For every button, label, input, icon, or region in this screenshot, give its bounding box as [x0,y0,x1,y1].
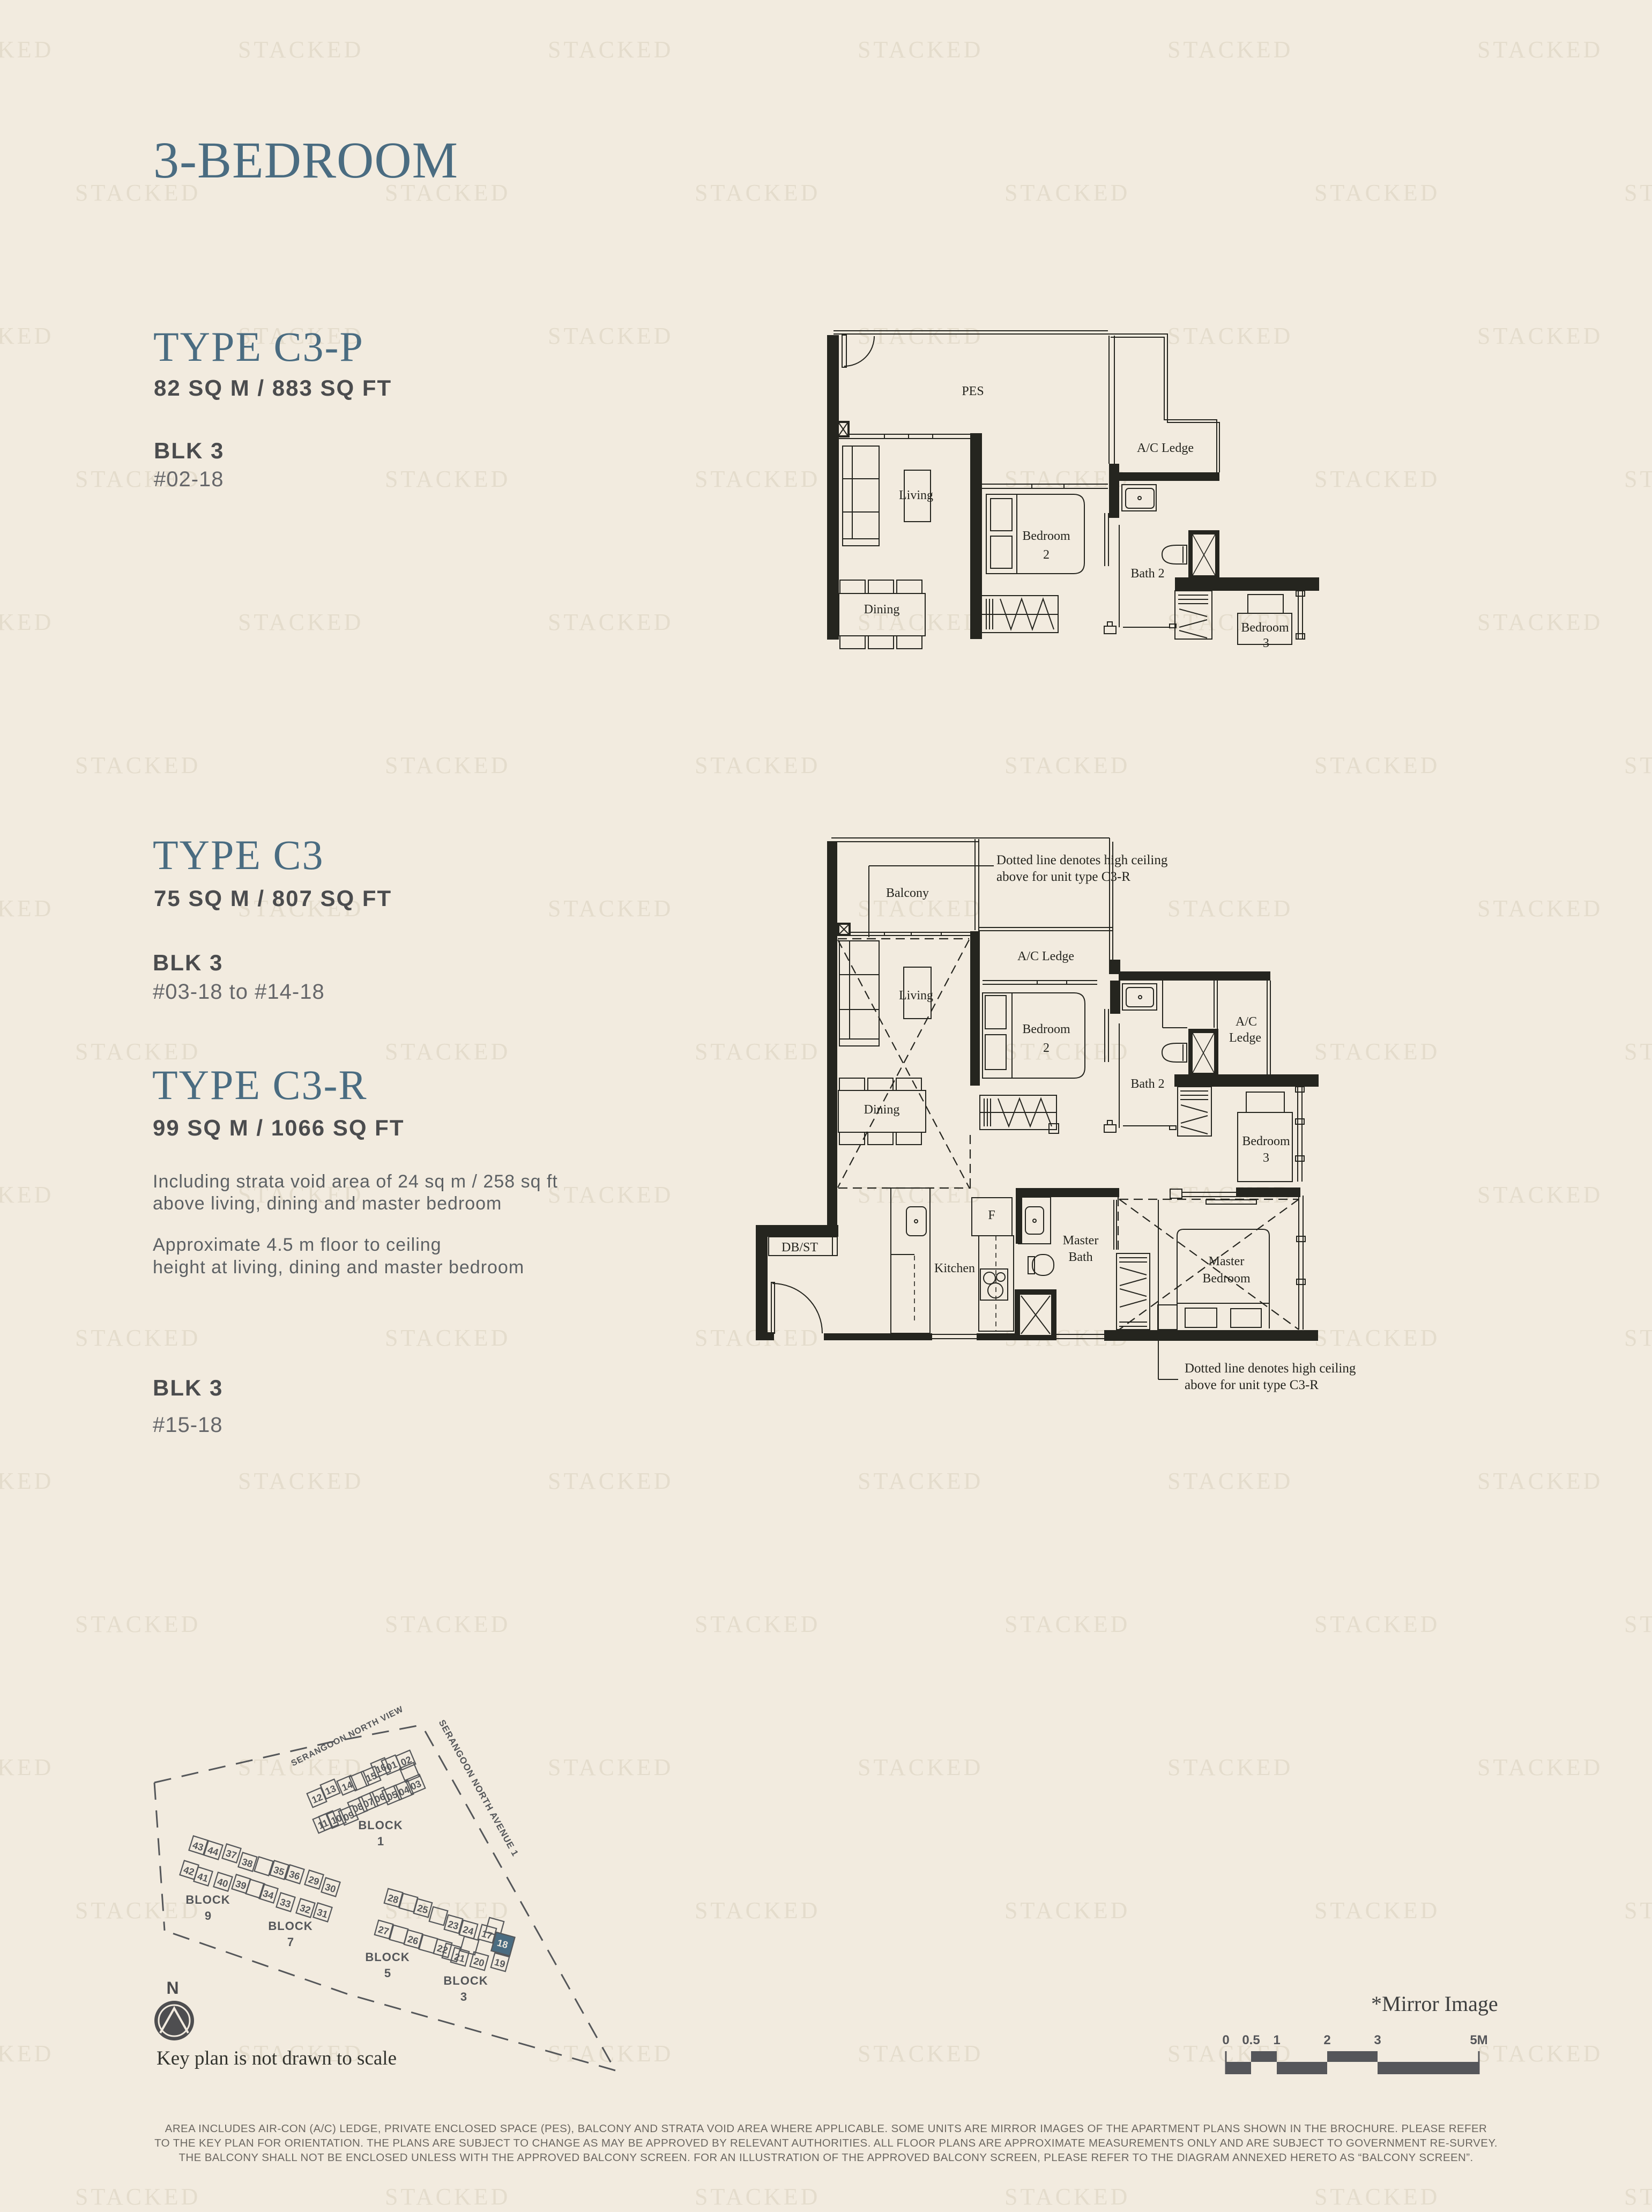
svg-text:Bath 2: Bath 2 [1130,567,1164,581]
svg-text:3: 3 [1263,1151,1269,1165]
svg-text:9: 9 [205,1909,211,1922]
svg-text:2: 2 [1043,1041,1050,1055]
svg-text:BLOCK: BLOCK [443,1974,488,1987]
svg-text:BLOCK: BLOCK [358,1818,403,1832]
svg-text:Ledge: Ledge [1229,1031,1261,1045]
svg-text:Dining: Dining [864,1103,900,1117]
svg-text:Dining: Dining [864,603,900,617]
svg-text:A/C Ledge: A/C Ledge [1017,949,1074,963]
svg-text:Kitchen: Kitchen [934,1261,975,1275]
svg-text:DB/ST: DB/ST [782,1241,818,1255]
svg-text:above for unit type C3-R: above for unit type C3-R [1185,1378,1319,1392]
svg-text:N: N [166,1978,178,1998]
svg-text:Bedroom: Bedroom [1022,1022,1070,1036]
svg-text:F: F [988,1208,995,1222]
svg-text:Bedroom: Bedroom [1022,529,1070,543]
svg-text:5: 5 [384,1966,391,1980]
svg-text:BLOCK: BLOCK [268,1919,312,1933]
svg-text:BLOCK: BLOCK [365,1950,410,1964]
svg-text:PES: PES [962,384,984,398]
svg-text:Bedroom: Bedroom [1241,621,1289,635]
svg-text:Bath: Bath [1068,1250,1092,1264]
svg-text:Living: Living [899,488,933,502]
svg-text:3: 3 [460,1990,467,2003]
svg-text:Dotted line denotes high ceili: Dotted line denotes high ceiling [996,853,1168,867]
svg-text:1: 1 [377,1835,384,1848]
svg-text:1: 1 [1273,2033,1280,2047]
svg-text:0: 0 [1222,2033,1229,2047]
svg-text:5M: 5M [1470,2033,1487,2047]
svg-text:Master: Master [1063,1234,1099,1248]
svg-text:above for unit type C3-R: above for unit type C3-R [996,870,1130,884]
svg-text:Balcony: Balcony [886,886,929,900]
svg-text:Dotted line denotes high ceili: Dotted line denotes high ceiling [1185,1361,1356,1376]
svg-text:Bedroom: Bedroom [1202,1272,1251,1286]
svg-text:Living: Living [899,989,933,1003]
svg-text:Bath 2: Bath 2 [1130,1077,1164,1091]
svg-text:3: 3 [1374,2033,1381,2047]
svg-text:3: 3 [1263,636,1269,650]
svg-text:A/C: A/C [1236,1015,1257,1029]
svg-text:Master: Master [1209,1255,1245,1268]
svg-text:A/C Ledge: A/C Ledge [1137,441,1194,455]
svg-text:2: 2 [1323,2033,1330,2047]
svg-text:2: 2 [1043,548,1050,562]
svg-text:Bedroom: Bedroom [1242,1134,1290,1148]
svg-text:0.5: 0.5 [1242,2033,1260,2047]
svg-text:7: 7 [287,1935,294,1949]
svg-text:BLOCK: BLOCK [185,1893,230,1906]
